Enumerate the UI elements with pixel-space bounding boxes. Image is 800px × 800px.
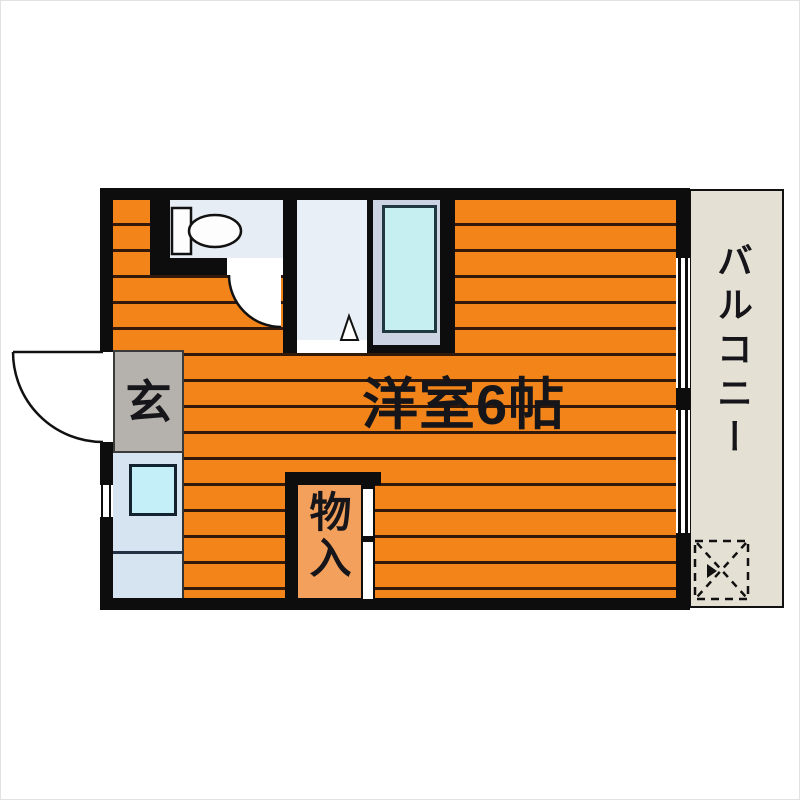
window-center-tick: [676, 388, 690, 410]
entrance-area: 玄: [113, 350, 184, 453]
bathroom-threshold: [297, 340, 367, 353]
toilet-room: [170, 200, 283, 258]
toilet-bottom-wall: [150, 258, 227, 275]
top-wall: [100, 188, 690, 200]
right-wall-upper: [676, 188, 690, 258]
right-wall-lower: [676, 533, 690, 610]
balcony-window: [676, 258, 690, 533]
floor-plan: 玄: [0, 0, 800, 800]
entrance-door-opening: [103, 352, 113, 442]
left-wall-mid: [100, 442, 113, 485]
door-cap: [363, 599, 373, 607]
left-wall-lower: [100, 517, 113, 610]
toilet-right-wall: [283, 188, 297, 353]
kitchen-divider: [113, 551, 184, 554]
door-cap: [363, 481, 373, 489]
storage-label: 物入: [306, 490, 348, 582]
door-cap: [363, 536, 373, 542]
bathroom: [297, 200, 367, 340]
entrance-door-arc: [13, 352, 103, 442]
window-pane-line: [109, 485, 111, 517]
closet-sliding-door: [361, 481, 375, 607]
left-wall-upper: [100, 188, 113, 352]
bottom-wall: [100, 598, 690, 610]
left-window: [100, 485, 113, 517]
sink-square: [129, 464, 177, 516]
main-room-label: 洋室6帖: [362, 374, 565, 436]
entrance-label: 玄: [126, 379, 172, 425]
toilet-door-opening: [227, 258, 283, 275]
balcony-label: バルコニー: [714, 242, 750, 462]
window-pane-line: [101, 485, 103, 517]
closet-left-wall: [285, 472, 298, 598]
bathtub: [382, 205, 437, 333]
